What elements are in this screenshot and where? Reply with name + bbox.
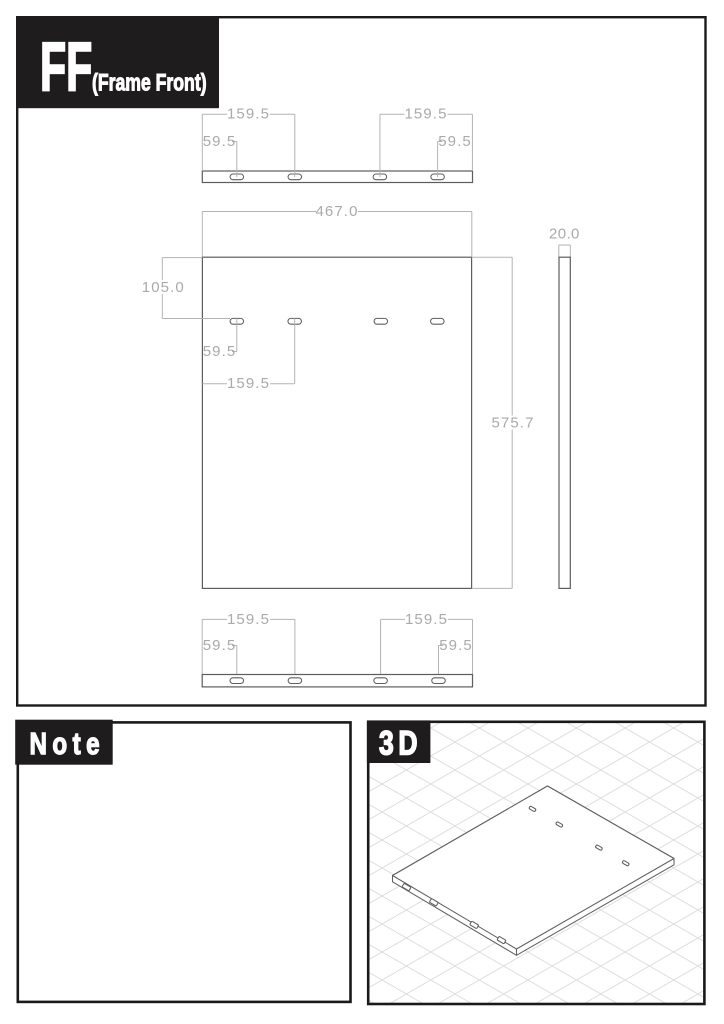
svg-text:59.5: 59.5 xyxy=(203,637,237,654)
svg-text:(Frame Front): (Frame Front) xyxy=(92,69,207,97)
svg-text:59.5: 59.5 xyxy=(438,133,472,150)
svg-text:467.0: 467.0 xyxy=(315,203,358,220)
svg-text:Note: Note xyxy=(30,726,106,761)
svg-text:FF: FF xyxy=(40,29,92,106)
svg-text:59.5: 59.5 xyxy=(439,637,473,654)
svg-text:105.0: 105.0 xyxy=(142,279,185,296)
svg-text:159.5: 159.5 xyxy=(227,611,270,628)
svg-text:59.5: 59.5 xyxy=(203,343,237,360)
svg-text:59.5: 59.5 xyxy=(203,133,237,150)
svg-text:20.0: 20.0 xyxy=(549,226,580,243)
svg-text:575.7: 575.7 xyxy=(491,414,534,431)
svg-text:159.5: 159.5 xyxy=(405,611,448,628)
svg-text:3D: 3D xyxy=(379,724,422,762)
svg-text:159.5: 159.5 xyxy=(227,106,270,123)
svg-text:159.5: 159.5 xyxy=(227,375,270,392)
svg-text:159.5: 159.5 xyxy=(404,106,447,123)
